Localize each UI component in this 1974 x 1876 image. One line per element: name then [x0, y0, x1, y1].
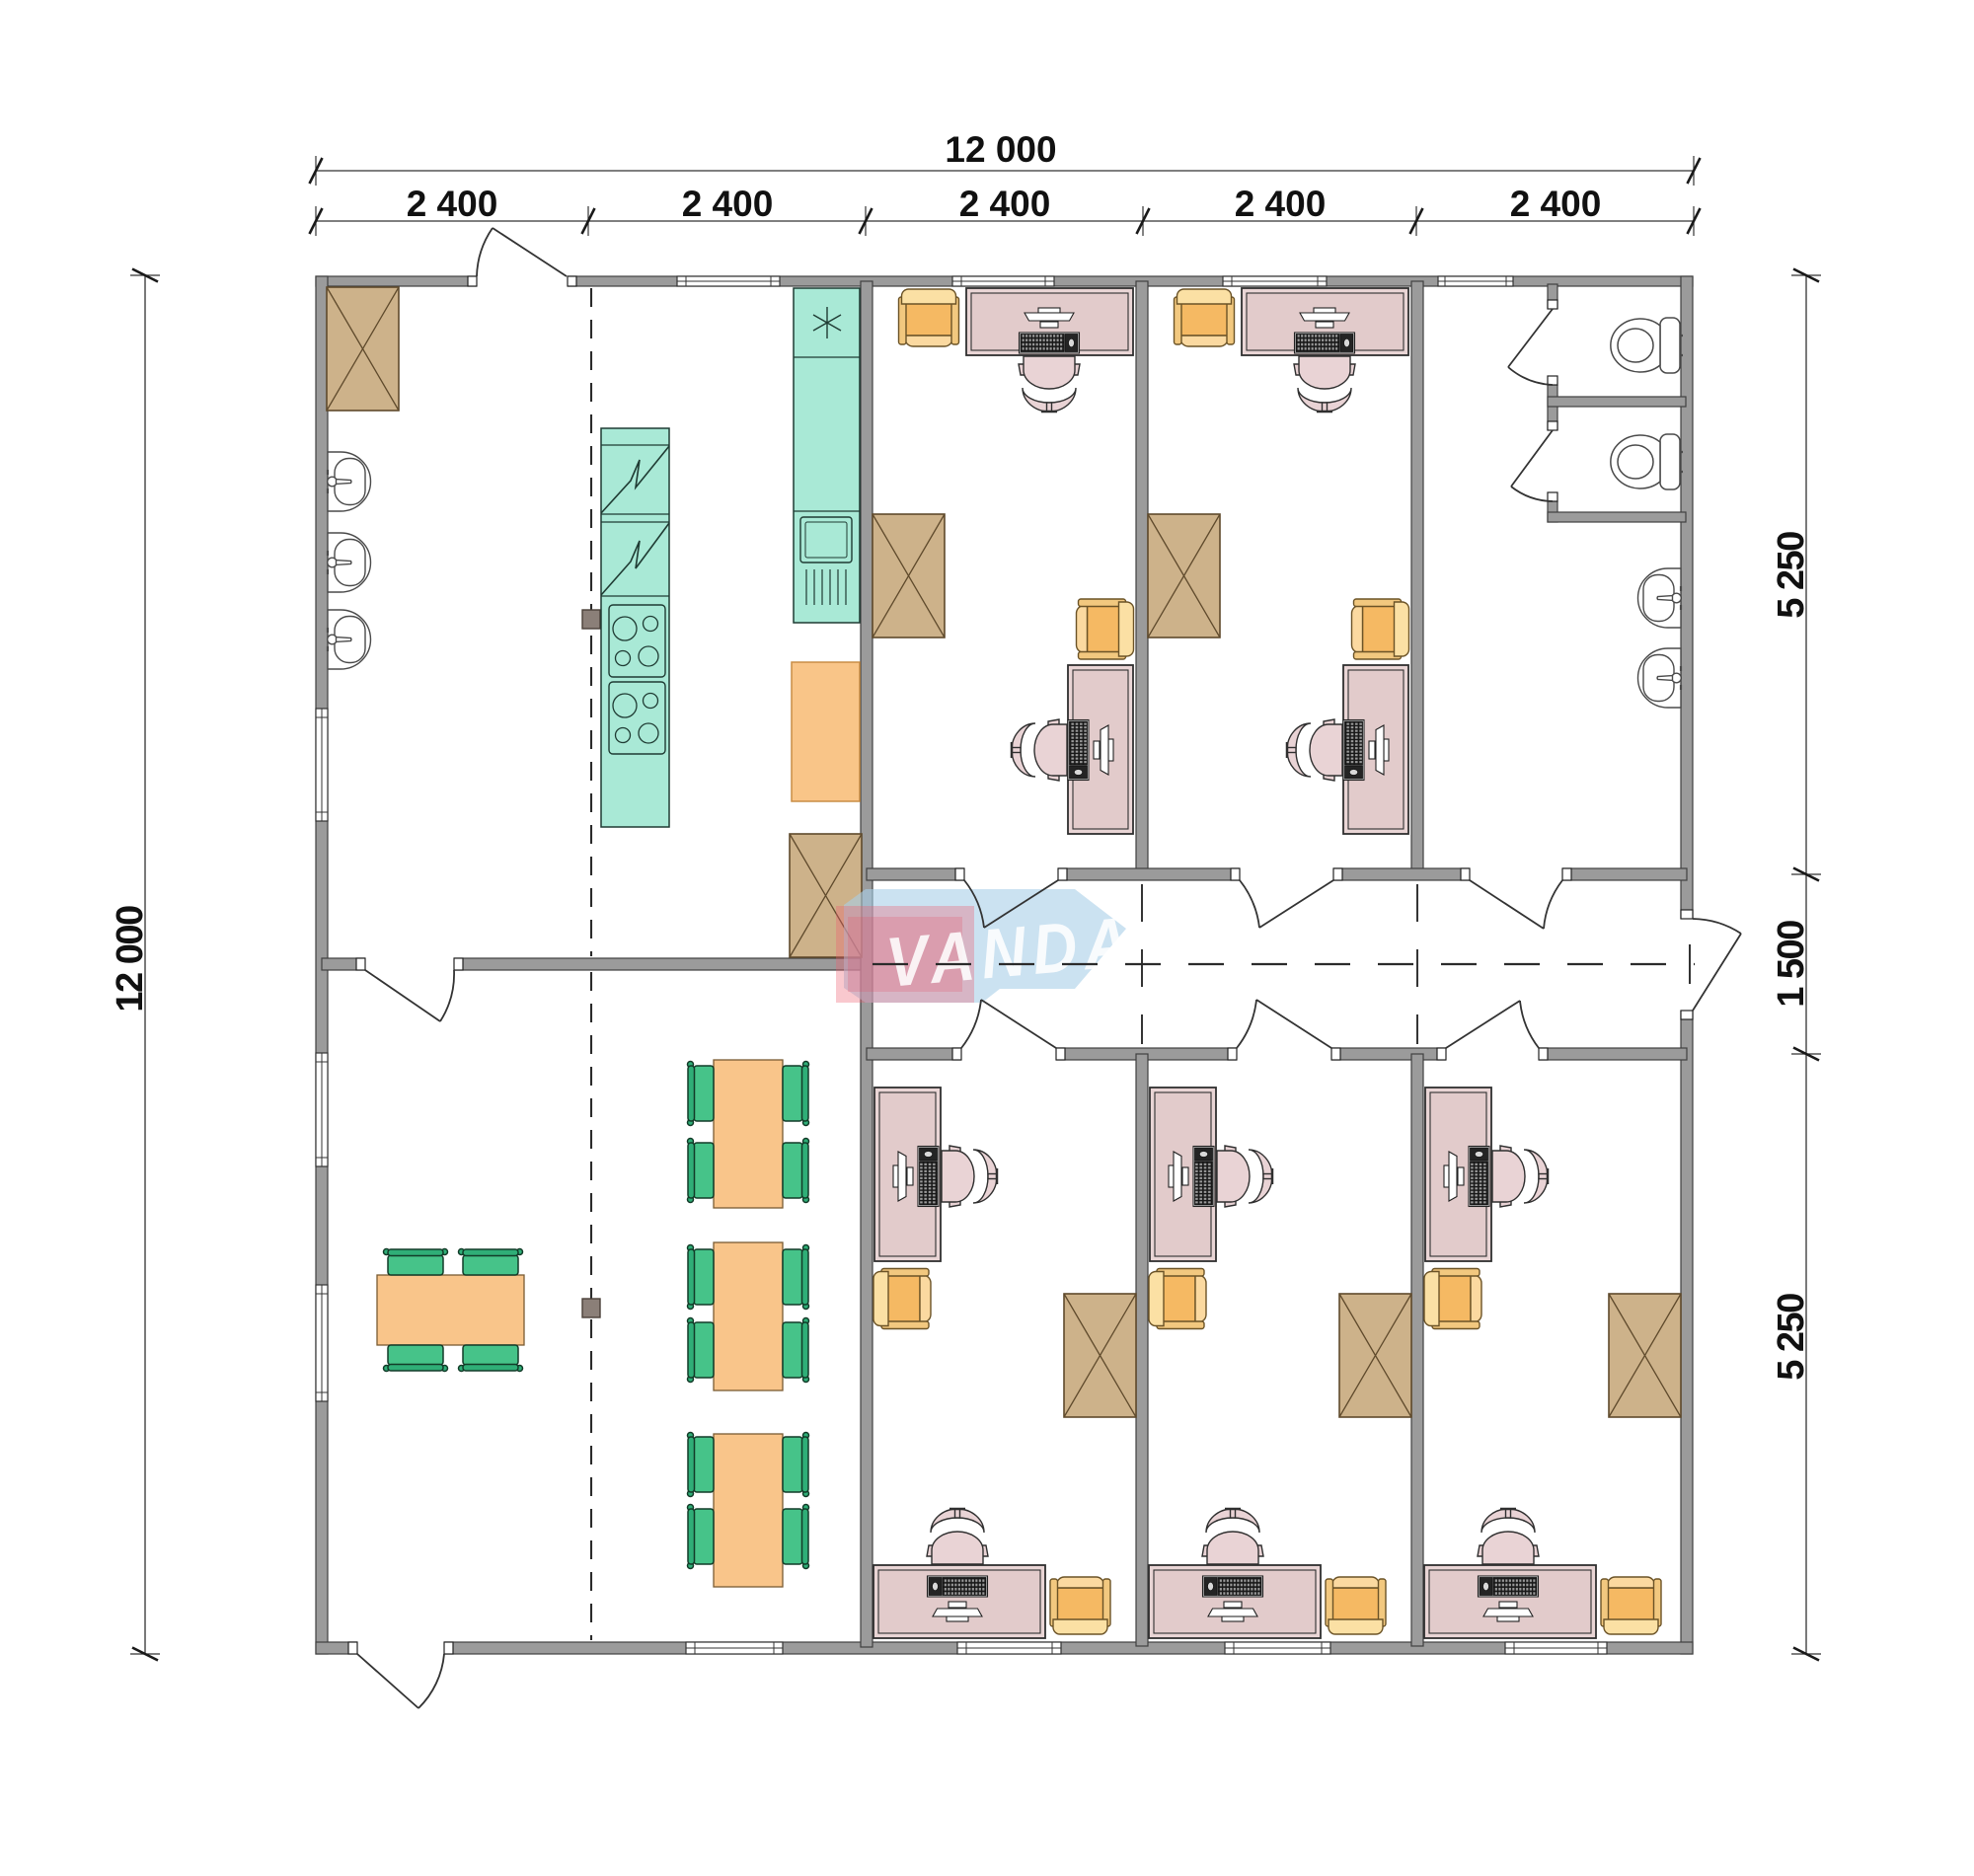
- svg-text:5 250: 5 250: [1771, 1294, 1812, 1381]
- svg-text:1 500: 1 500: [1771, 921, 1812, 1008]
- svg-text:12 000: 12 000: [945, 129, 1056, 170]
- svg-text:2 400: 2 400: [959, 184, 1051, 224]
- svg-text:2 400: 2 400: [682, 184, 774, 224]
- svg-text:2 400: 2 400: [1510, 184, 1602, 224]
- svg-text:5 250: 5 250: [1771, 532, 1812, 619]
- svg-text:2 400: 2 400: [407, 184, 498, 224]
- svg-text:2 400: 2 400: [1235, 184, 1327, 224]
- svg-text:12 000: 12 000: [110, 906, 151, 1013]
